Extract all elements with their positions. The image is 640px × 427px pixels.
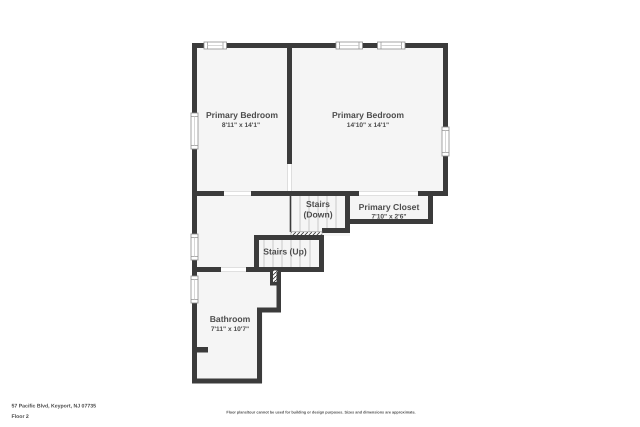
svg-text:57 Pacific Blvd, Keyport, NJ 0: 57 Pacific Blvd, Keyport, NJ 07735	[12, 404, 97, 410]
svg-text:7'11" x 10'7": 7'11" x 10'7"	[211, 326, 249, 333]
svg-text:Primary Bedroom: Primary Bedroom	[332, 110, 404, 120]
svg-text:Stairs: Stairs	[306, 199, 330, 209]
svg-text:Bathroom: Bathroom	[210, 314, 251, 324]
svg-text:Floor plans/tour cannot be use: Floor plans/tour cannot be used for buil…	[226, 411, 415, 415]
svg-text:7'10" x 2'6": 7'10" x 2'6"	[371, 214, 406, 221]
svg-text:Primary Bedroom: Primary Bedroom	[206, 110, 278, 120]
svg-text:Primary Closet: Primary Closet	[359, 202, 420, 212]
svg-text:8'11" x 14'1": 8'11" x 14'1"	[222, 122, 260, 129]
svg-text:Floor 2: Floor 2	[12, 414, 29, 420]
svg-text:(Down): (Down)	[303, 209, 332, 219]
svg-text:14'10" x 14'1": 14'10" x 14'1"	[347, 122, 389, 129]
svg-text:Stairs (Up): Stairs (Up)	[263, 246, 307, 256]
